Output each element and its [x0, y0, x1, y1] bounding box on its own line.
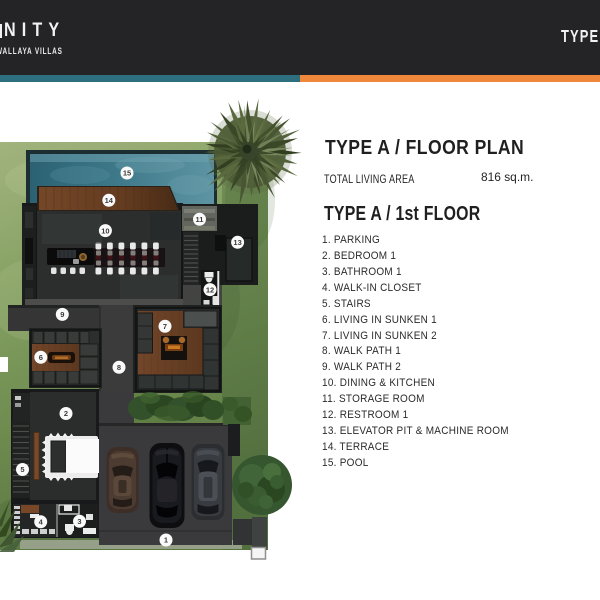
svg-text:5: 5 [20, 465, 24, 474]
svg-text:13: 13 [233, 238, 241, 247]
svg-text:11: 11 [196, 215, 204, 224]
svg-text:9: 9 [60, 310, 64, 319]
svg-text:8: 8 [117, 363, 121, 372]
svg-text:1: 1 [164, 536, 168, 545]
svg-text:12: 12 [206, 285, 214, 294]
svg-text:2: 2 [64, 409, 68, 418]
svg-text:14: 14 [105, 196, 114, 205]
svg-text:10: 10 [101, 226, 109, 235]
svg-text:7: 7 [163, 322, 167, 331]
svg-text:15: 15 [123, 169, 131, 178]
svg-text:6: 6 [39, 353, 43, 362]
svg-text:3: 3 [77, 517, 81, 526]
